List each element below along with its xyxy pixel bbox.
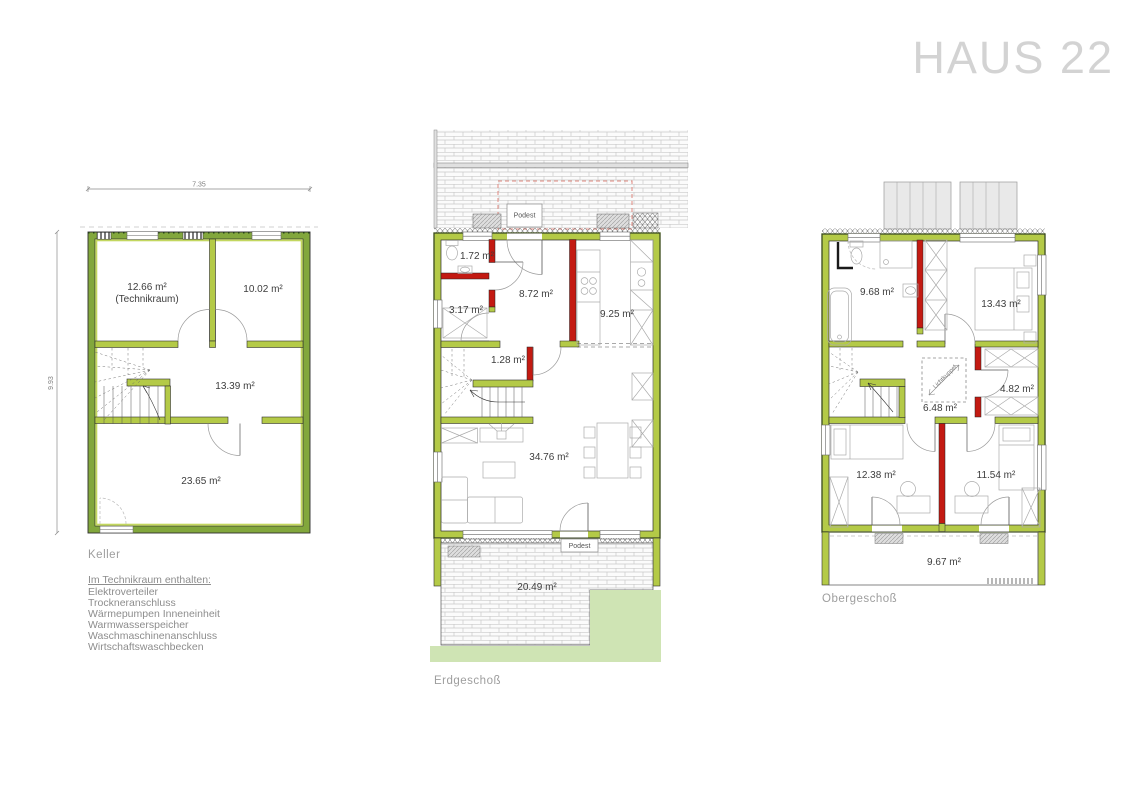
keller-plan: 12.66 m² (Technikraum) 10.02 m² 13.39 m²… [48,182,318,562]
note-heading: Im Technikraum enthalten: [88,575,220,586]
eg-terrace: Podest 20.49 m² [430,538,661,662]
podest-bottom: Podest [561,539,598,552]
floorplan-sheet: 12.66 m² (Technikraum) 10.02 m² 13.39 m²… [0,0,1140,806]
note-item: Wirtschaftswaschbecken [88,642,220,653]
dim-label-993: 9.93 [48,376,55,390]
room-label-flur-eg: 8.72 m² [519,289,554,300]
keller-plan-label: Keller [88,549,120,561]
room-label-treppe: 1.28 m² [491,355,526,366]
room-label-kueche: 9.25 m² [600,309,635,320]
site-wall [434,163,688,168]
obergeschoss-plan-label: Obergeschoß [822,593,897,605]
keller-exterior-walls [88,232,310,533]
terrace-mat [448,546,480,557]
doormat [473,214,501,228]
sheet-title: HAUS 22 [912,32,1114,84]
room-label-balkon: 9.67 m² [927,557,962,568]
site-wall-left [434,130,437,228]
podest-top: Podest [507,204,542,227]
erdgeschoss-plan: Podest [430,130,688,687]
room-label-technikraum-2: (Technikraum) [115,294,178,305]
room-label-bad: 9.68 m² [860,287,895,298]
floorplan-drawing: 12.66 m² (Technikraum) 10.02 m² 13.39 m²… [0,0,1140,806]
og-exterior-walls [822,234,1045,532]
podest-bottom-label: Podest [569,543,591,550]
room-label-keller-2365: 23.65 m² [181,476,221,487]
room-label-abstell-eg: 3.17 m² [449,305,484,316]
room-label-kind2: 11.54 m² [977,470,1016,481]
room-label-technikraum: 12.66 m² [127,282,167,293]
og-canopy [884,182,1017,229]
room-label-wc: 1.72 m² [460,251,495,262]
drain-strip [822,229,1045,234]
keller-dimension-left [55,230,59,535]
obergeschoss-plan: Lichtkuppel [822,182,1047,605]
gravel-strip [633,213,658,228]
technikraum-note: Im Technikraum enthalten: Elektroverteil… [88,575,220,653]
room-label-flur-og: 6.48 m² [923,403,958,414]
room-label-keller-1002: 10.02 m² [243,284,283,295]
dim-label-735: 7.35 [192,182,206,189]
doormat [597,214,629,228]
room-label-schlafen: 13.43 m² [981,299,1021,310]
room-label-kind1: 12.38 m² [856,470,896,481]
room-label-wohnen: 34.76 m² [529,452,569,463]
room-label-keller-1339: 13.39 m² [215,381,255,392]
room-label-abstell-og: 4.82 m² [1000,384,1035,395]
room-label-terrasse: 20.49 m² [517,582,557,593]
erdgeschoss-plan-label: Erdgeschoß [434,675,501,687]
podest-top-label: Podest [514,213,536,220]
